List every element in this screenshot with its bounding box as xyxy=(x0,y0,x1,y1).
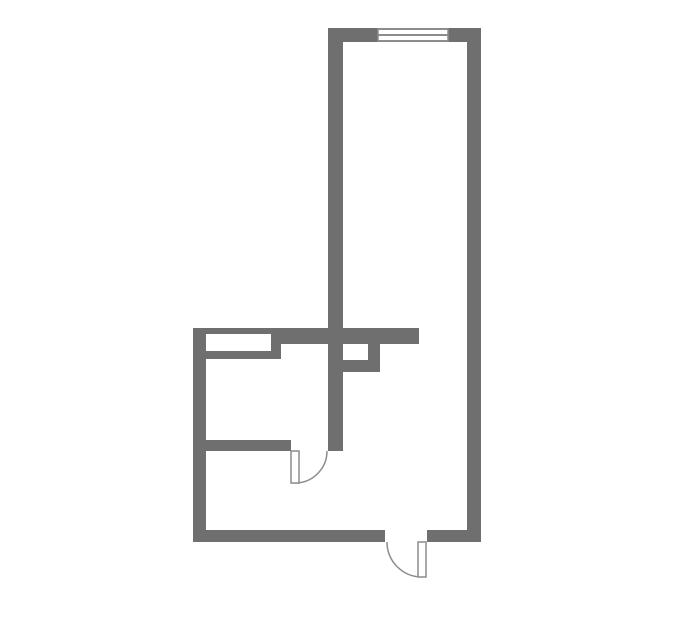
mid-horizontal-wall xyxy=(281,328,419,344)
niche-top-strip xyxy=(193,328,281,334)
bottom-wall-right xyxy=(427,530,481,542)
right-outer-wall xyxy=(467,28,481,542)
niche-bottom-strip xyxy=(193,351,281,359)
niche-right-block xyxy=(271,328,281,359)
partition-wall xyxy=(193,440,291,451)
shaft-bottom-wall xyxy=(328,360,380,372)
interior-door-leaf xyxy=(291,451,299,483)
floorplan xyxy=(0,0,679,634)
left-outer-wall xyxy=(193,328,206,542)
bottom-wall-left xyxy=(193,530,385,542)
entry-door-leaf xyxy=(418,542,426,577)
floorplan-svg xyxy=(0,0,679,634)
upper-room-left-wall xyxy=(328,28,343,451)
